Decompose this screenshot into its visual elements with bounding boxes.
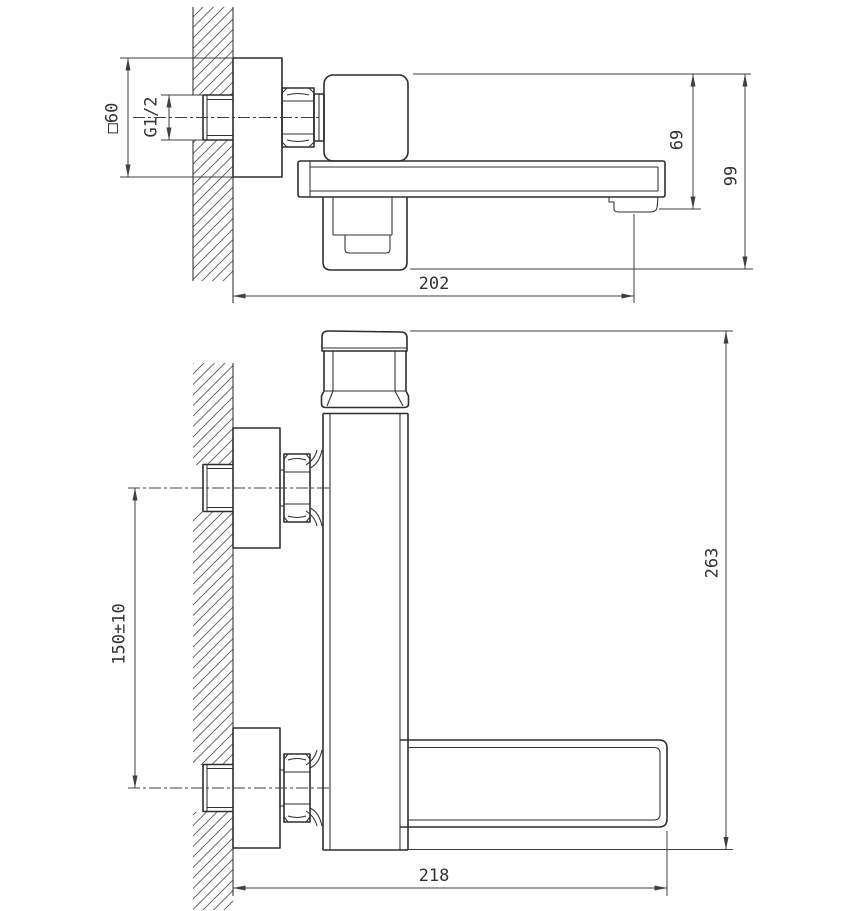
dim-label-thread: G1/2: [142, 97, 162, 138]
front-view: 150±10 263 218: [110, 331, 733, 910]
handle: [322, 331, 409, 408]
spout: [400, 740, 667, 827]
dim-label-inlet-spacing: 150±10: [110, 603, 130, 664]
dim-label-flange: □60: [103, 103, 123, 134]
wall-hatch: [193, 363, 233, 465]
valve-body: [324, 75, 408, 161]
wall-section: [193, 7, 233, 303]
wall-section: [193, 363, 233, 910]
handle: [323, 197, 407, 270]
handle-base-dome: [322, 391, 409, 408]
aerator: [609, 197, 658, 212]
drawing-sheet: □60 G1/2 69 99 202: [0, 0, 846, 911]
body-column: [323, 414, 408, 851]
dim-reach-218: 218: [233, 831, 667, 896]
wall-hatch: [193, 140, 233, 281]
dim-label-reach: 218: [419, 866, 450, 886]
dim-label-overall-height: 263: [703, 548, 723, 579]
spout: [298, 161, 665, 197]
dim-inlet-spacing-150: 150±10: [110, 488, 135, 788]
dim-label-overall-drop: 99: [722, 166, 742, 186]
dim-thread: G1/2: [142, 95, 203, 140]
faucet-dimensional-drawing: □60 G1/2 69 99 202: [0, 0, 846, 911]
dim-reach-202: 202: [233, 214, 634, 303]
dim-overall-height-263: 263: [405, 331, 733, 850]
dim-spout-drop-69: 69: [413, 74, 751, 209]
side-view: □60 G1/2 69 99 202: [103, 7, 753, 303]
wall-hatch: [193, 812, 233, 910]
wall-hatch: [193, 512, 233, 765]
wall-hatch: [193, 7, 233, 95]
dim-label-spout-drop: 69: [668, 130, 688, 150]
dim-overall-drop-99: 99: [410, 74, 753, 269]
dim-label-reach: 202: [419, 274, 450, 294]
